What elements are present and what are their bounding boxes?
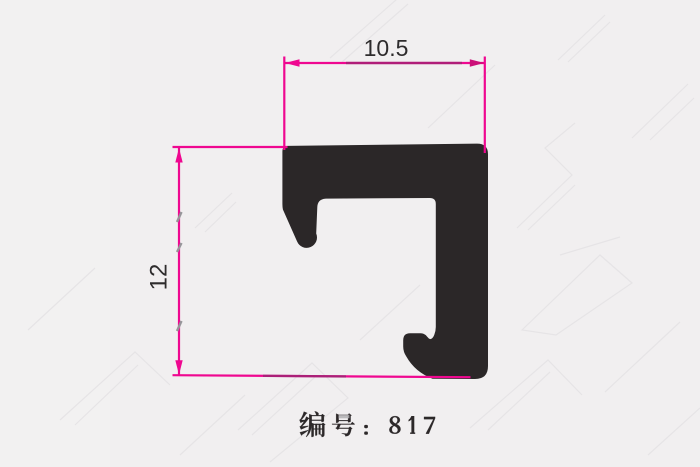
svg-text:10.5: 10.5	[364, 35, 409, 61]
svg-text:12: 12	[146, 264, 173, 291]
